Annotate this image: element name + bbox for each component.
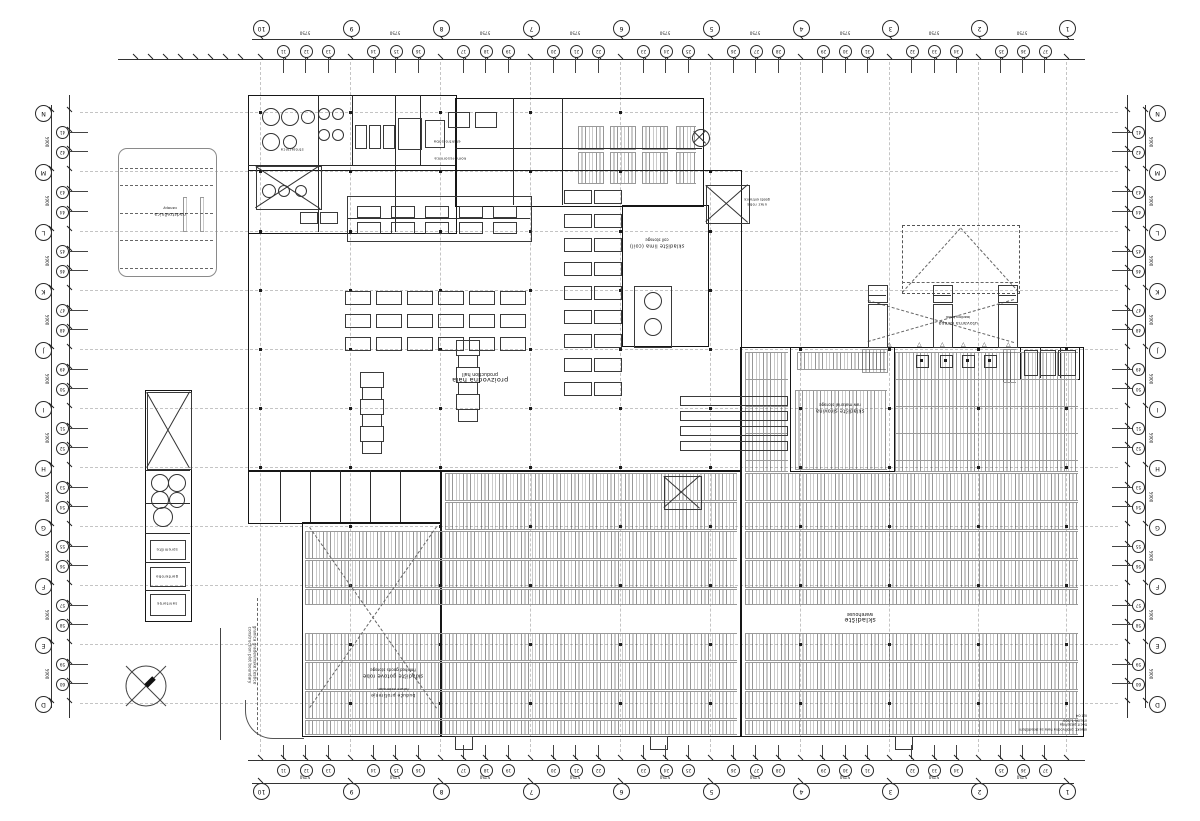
grid-subbubble-col: 27 xyxy=(750,764,763,777)
grid-subbubble-col: 30 xyxy=(839,764,852,777)
sub-stem xyxy=(66,565,88,566)
grid-subbubble-col: 29 xyxy=(817,45,830,58)
workbench xyxy=(407,291,433,305)
equipment xyxy=(1024,350,1038,376)
hatch-band xyxy=(200,197,204,232)
grid-bubble-row: H xyxy=(1149,460,1166,477)
sub-stem xyxy=(66,329,88,330)
lane-marking xyxy=(120,240,213,241)
dock-chevron: ▽ xyxy=(1006,341,1011,347)
grid-bubble-col: 2 xyxy=(971,20,988,37)
grid-subbubble-col: 14 xyxy=(367,764,380,777)
tank-circle xyxy=(278,185,290,197)
equipment xyxy=(475,112,497,128)
dim-text: 5750 xyxy=(750,31,761,36)
grid-subbubble-col: 15 xyxy=(390,764,403,777)
dock-chevron: ▽ xyxy=(887,341,892,347)
label-lockers: garderoba xyxy=(156,574,178,579)
tank-circle xyxy=(151,474,169,492)
workbench xyxy=(391,222,415,234)
label-production-hall: proizvodna hala production hall xyxy=(452,370,508,384)
workbench xyxy=(407,314,433,328)
pallet-rack xyxy=(680,411,788,421)
grid-subbubble-col: 19 xyxy=(502,764,515,777)
hatch-band xyxy=(578,152,604,184)
label-warehouse: skladište warehouse xyxy=(844,610,876,624)
workbench xyxy=(425,206,449,218)
grid-bubble-row: N xyxy=(35,105,52,122)
inner-wall xyxy=(352,95,353,165)
grid-bubble-row: M xyxy=(35,164,52,181)
grid-subbubble-row: 60 xyxy=(56,678,69,691)
grid-subbubble-col: 25 xyxy=(682,45,695,58)
sub-stem xyxy=(66,132,88,133)
grid-subbubble-row: 56 xyxy=(1132,560,1145,573)
sub-stem xyxy=(1112,546,1134,547)
sub-stem xyxy=(66,428,88,429)
grid-subbubble-col: 12 xyxy=(300,45,313,58)
grid-subbubble-row: 50 xyxy=(56,383,69,396)
truck-windshield xyxy=(868,295,886,296)
grid-subbubble-col: 35 xyxy=(995,45,1008,58)
sub-stem xyxy=(1112,151,1134,152)
grid-bubble-col: 1 xyxy=(1059,20,1076,37)
grid-subbubble-col: 36 xyxy=(1017,764,1030,777)
lane-marking xyxy=(120,185,213,186)
grid-subbubble-col: 12 xyxy=(300,764,313,777)
dock-door xyxy=(650,736,668,750)
workbench xyxy=(376,337,402,351)
grid-subbubble-col: 22 xyxy=(592,764,605,777)
grid-subbubble-row: 60 xyxy=(1132,678,1145,691)
grid-bubble-col: 5 xyxy=(703,783,720,800)
dim-text: 5900 xyxy=(1149,668,1154,679)
dim-text: 5900 xyxy=(45,491,50,502)
grid-subbubble-col: 24 xyxy=(660,764,673,777)
workbench xyxy=(459,206,483,218)
road-curb xyxy=(245,700,304,739)
grid-bubble-col: 3 xyxy=(882,783,899,800)
dim-text: 5900 xyxy=(45,255,50,266)
grid-subbubble-row: 45 xyxy=(1132,245,1145,258)
grid-subbubble-col: 26 xyxy=(727,45,740,58)
equipment xyxy=(398,118,422,150)
grid-subbubble-col: 35 xyxy=(995,764,1008,777)
equipment xyxy=(347,196,532,242)
workbench xyxy=(594,382,622,396)
grid-subbubble-row: 51 xyxy=(1132,422,1145,435)
dim-text: 5750 xyxy=(1017,31,1028,36)
workbench xyxy=(564,382,592,396)
grid-subbubble-row: 44 xyxy=(56,206,69,219)
grid-subbubble-col: 24 xyxy=(660,45,673,58)
dim-text: 5750 xyxy=(480,31,491,36)
grid-bubble-col: 4 xyxy=(793,20,810,37)
sub-stem xyxy=(66,605,88,606)
equipment xyxy=(448,112,470,128)
pallet-rack xyxy=(680,426,788,436)
workbench xyxy=(407,337,433,351)
dim-line xyxy=(252,783,1074,784)
north-arrow-compass xyxy=(123,663,169,709)
dock-bumper-dot xyxy=(944,359,947,362)
grid-subbubble-col: 13 xyxy=(322,764,335,777)
pallet-rack xyxy=(680,396,788,406)
grid-subbubble-col: 27 xyxy=(750,45,763,58)
dock-chevron: ▽ xyxy=(961,341,966,347)
grid-subbubble-col: 31 xyxy=(861,764,874,777)
label-coil-storage: skladište lima (coil) coil storage xyxy=(630,237,685,248)
grid-bubble-row: I xyxy=(1149,401,1166,418)
sub-stem xyxy=(1112,211,1134,212)
grid-subbubble-row: 58 xyxy=(1132,619,1145,632)
grid-subbubble-row: 49 xyxy=(56,363,69,376)
workbench xyxy=(438,291,464,305)
grid-subbubble-col: 16 xyxy=(412,764,425,777)
sub-stem xyxy=(1112,624,1134,625)
dim-text: 5750 xyxy=(570,31,581,36)
sub-stem xyxy=(1112,251,1134,252)
truck-cab xyxy=(868,285,888,303)
hatch-band xyxy=(895,433,1078,461)
workbench xyxy=(493,222,517,234)
grid-bubble-col: 8 xyxy=(433,783,450,800)
grid-subbubble-col: 28 xyxy=(772,764,785,777)
sub-stem xyxy=(1112,487,1134,488)
grid-subbubble-row: 47 xyxy=(56,304,69,317)
inner-wall xyxy=(145,533,190,534)
tank-circle xyxy=(301,110,315,124)
grid-subbubble-col: 13 xyxy=(322,45,335,58)
dock-chevron: ▽ xyxy=(917,341,922,347)
wall xyxy=(248,470,442,524)
sub-stem xyxy=(1112,605,1134,606)
truck-cab xyxy=(998,285,1018,303)
hatch-band xyxy=(642,152,668,184)
press-machine xyxy=(360,372,384,388)
label-storage-small: spremište xyxy=(156,547,177,552)
grid-subbubble-row: 53 xyxy=(1132,481,1145,494)
workbench xyxy=(376,291,402,305)
label-future-extension: buduće proširenje future extension xyxy=(371,687,416,697)
grid-bubble-row: F xyxy=(35,578,52,595)
dim-text: 5900 xyxy=(45,314,50,325)
sub-stem xyxy=(66,310,88,311)
sub-stem xyxy=(66,447,88,448)
grid-subbubble-col: 18 xyxy=(480,45,493,58)
dim-text: 5750 xyxy=(300,31,311,36)
grid-bubble-col: 8 xyxy=(433,20,450,37)
grid-bubble-row: D xyxy=(1149,696,1166,713)
hatch-band xyxy=(745,531,1078,559)
sub-stem xyxy=(66,683,88,684)
hatch-band xyxy=(745,662,1078,690)
grid-subbubble-row: 48 xyxy=(1132,324,1145,337)
tank-circle xyxy=(332,129,344,141)
inner-wall xyxy=(513,98,514,205)
hatch-band xyxy=(745,460,788,472)
sub-stem xyxy=(1112,329,1134,330)
sub-stem xyxy=(66,369,88,370)
grid-subbubble-col: 11 xyxy=(277,764,290,777)
hatch-band xyxy=(745,502,1078,530)
inner-wall xyxy=(310,470,311,522)
workbench xyxy=(564,286,592,300)
lane-marking xyxy=(120,268,213,269)
workbench xyxy=(500,314,526,328)
grid-subbubble-col: 21 xyxy=(570,45,583,58)
grid-bubble-row: K xyxy=(35,283,52,300)
tank-circle xyxy=(318,108,330,120)
tank-circle xyxy=(318,129,330,141)
hatch-band xyxy=(862,349,888,373)
dim-text: 5900 xyxy=(1149,136,1154,147)
tank-circle xyxy=(281,108,299,126)
grid-bubble-row: K xyxy=(1149,283,1166,300)
inner-wall xyxy=(400,470,401,522)
workbench xyxy=(594,358,622,372)
press-machine xyxy=(360,399,384,415)
grid-subbubble-row: 58 xyxy=(56,619,69,632)
sub-stem xyxy=(66,211,88,212)
workbench xyxy=(564,310,592,324)
workbench xyxy=(594,262,622,276)
workbench xyxy=(438,314,464,328)
workbench xyxy=(594,238,622,252)
grid-subbubble-row: 52 xyxy=(56,442,69,455)
workbench xyxy=(594,214,622,228)
grid-subbubble-row: 44 xyxy=(1132,206,1145,219)
workbench xyxy=(345,314,371,328)
label-loading-bank: utovarna rampa loading bank xyxy=(938,315,978,325)
grid-bubble-row: G xyxy=(1149,519,1166,536)
grid-bubble-row: I xyxy=(35,401,52,418)
grid-subbubble-col: 17 xyxy=(457,764,470,777)
workbench xyxy=(357,206,381,218)
dock-door xyxy=(455,736,473,750)
workbench xyxy=(469,314,495,328)
inner-wall xyxy=(145,470,190,471)
equipment xyxy=(383,125,395,149)
workbench xyxy=(500,291,526,305)
drawing-stamp: objekt: proizvodna hala sa skladištem tl… xyxy=(1019,713,1087,732)
grid-subbubble-row: 55 xyxy=(56,540,69,553)
grid-subbubble-col: 31 xyxy=(861,45,874,58)
workbench xyxy=(564,190,592,204)
label-mid-storage: skladište sirovina raw material storage xyxy=(816,402,865,413)
workbench xyxy=(564,334,592,348)
grid-subbubble-col: 20 xyxy=(547,764,560,777)
grid-bubble-row: E xyxy=(1149,637,1166,654)
grid-subbubble-row: 43 xyxy=(1132,186,1145,199)
grid-subbubble-row: 52 xyxy=(1132,442,1145,455)
inner-wall xyxy=(562,98,563,205)
grid-subbubble-col: 15 xyxy=(390,45,403,58)
workbench xyxy=(391,206,415,218)
grid-subbubble-col: 33 xyxy=(928,45,941,58)
grid-bubble-row: M xyxy=(1149,164,1166,181)
grid-subbubble-row: 50 xyxy=(1132,383,1145,396)
grid-bubble-row: F xyxy=(1149,578,1166,595)
sub-stem xyxy=(66,546,88,547)
hatch-band xyxy=(305,589,737,605)
dim-line xyxy=(118,59,1085,60)
grid-bubble-col: 7 xyxy=(523,20,540,37)
floor-plan-canvas: 1098765432111121314151617181920212223242… xyxy=(0,0,1200,821)
label-canopy: nadstrešnica canopy xyxy=(154,206,186,216)
label-compressor-room: kompresornica xyxy=(434,156,466,161)
press-machine xyxy=(458,409,478,422)
tank-circle xyxy=(153,507,173,527)
grid-subbubble-row: 42 xyxy=(56,146,69,159)
grid-bubble-col: 1 xyxy=(1059,783,1076,800)
grid-bubble-row: L xyxy=(1149,224,1166,241)
dim-text: 5900 xyxy=(45,373,50,384)
dashed-line xyxy=(902,282,1018,283)
grid-subbubble-row: 53 xyxy=(56,481,69,494)
grid-subbubble-row: 57 xyxy=(56,599,69,612)
dock-chevron: ▽ xyxy=(982,341,987,347)
workbench xyxy=(459,222,483,234)
grid-subbubble-col: 17 xyxy=(457,45,470,58)
workbench xyxy=(425,222,449,234)
grid-subbubble-row: 57 xyxy=(1132,599,1145,612)
grid-subbubble-row: 59 xyxy=(1132,658,1145,671)
equipment xyxy=(1040,350,1056,376)
hatch-band xyxy=(305,560,737,588)
hatch-band xyxy=(895,460,1078,472)
dim-text: 5750 xyxy=(928,31,939,36)
hatch-band xyxy=(305,531,737,559)
dim-text: 5900 xyxy=(1149,432,1154,443)
truck-windshield xyxy=(933,295,951,296)
sub-stem xyxy=(1112,132,1134,133)
dock-bumper-dot xyxy=(920,359,923,362)
dim-text: 5750 xyxy=(390,31,401,36)
grid-subbubble-col: 23 xyxy=(637,764,650,777)
grid-subbubble-row: 59 xyxy=(56,658,69,671)
grid-bubble-col: 10 xyxy=(253,20,270,37)
sub-stem xyxy=(1112,369,1134,370)
dim-text: 5750 xyxy=(839,31,850,36)
dim-text: 5900 xyxy=(45,550,50,561)
grid-subbubble-col: 32 xyxy=(906,45,919,58)
grid-bubble-row: D xyxy=(35,696,52,713)
dim-text: 5900 xyxy=(1149,196,1154,207)
label-plant-room: strojarnica xyxy=(280,147,303,152)
grid-bubble-row: J xyxy=(1149,342,1166,359)
hatch-band xyxy=(578,126,604,150)
grid-subbubble-row: 43 xyxy=(56,186,69,199)
label-el-room: elektro soba xyxy=(433,139,460,144)
equipment xyxy=(355,125,367,149)
hatch-band xyxy=(745,560,1078,588)
inner-wall xyxy=(370,470,371,522)
workbench xyxy=(594,334,622,348)
grid-bubble-col: 5 xyxy=(703,20,720,37)
tank-circle xyxy=(644,318,662,336)
hatch-band xyxy=(895,406,1078,434)
grid-subbubble-col: 30 xyxy=(839,45,852,58)
grid-bubble-row: E xyxy=(35,637,52,654)
grid-subbubble-col: 21 xyxy=(570,764,583,777)
label-plot-boundary: granica građevinske čestice construction… xyxy=(247,626,258,685)
grid-subbubble-col: 37 xyxy=(1039,45,1052,58)
hatch-band xyxy=(305,633,737,661)
sub-stem xyxy=(66,487,88,488)
sub-stem xyxy=(66,270,88,271)
grid-subbubble-row: 54 xyxy=(56,501,69,514)
dim-text: 5900 xyxy=(1149,373,1154,384)
truck-windshield xyxy=(998,295,1016,296)
equipment xyxy=(320,212,338,224)
sub-stem xyxy=(1112,191,1134,192)
truck-body xyxy=(868,304,888,348)
sub-stem xyxy=(66,624,88,625)
hatch-band xyxy=(676,152,696,184)
grid-bubble-col: 6 xyxy=(613,20,630,37)
workbench xyxy=(564,214,592,228)
grid-subbubble-col: 36 xyxy=(1017,45,1030,58)
dim-text: 5900 xyxy=(1149,491,1154,502)
grid-subbubble-row: 54 xyxy=(1132,501,1145,514)
dim-text: 5900 xyxy=(45,136,50,147)
workbench xyxy=(376,314,402,328)
tank-circle xyxy=(262,133,280,151)
lane-marking xyxy=(120,168,213,169)
grid-bubble-col: 4 xyxy=(793,783,810,800)
equipment xyxy=(1058,350,1076,376)
grid-bubble-row: L xyxy=(35,224,52,241)
sub-stem xyxy=(66,151,88,152)
dim-text: 5900 xyxy=(1149,314,1154,325)
sub-stem xyxy=(1112,310,1134,311)
grid-subbubble-col: 20 xyxy=(547,45,560,58)
dock-bumper-dot xyxy=(988,359,991,362)
hatch-band xyxy=(305,720,737,735)
grid-subbubble-row: 45 xyxy=(56,245,69,258)
inner-wall xyxy=(280,470,281,522)
workbench xyxy=(564,238,592,252)
dim-text: 5900 xyxy=(1149,255,1154,266)
label-goods-entrance: ulaz robe goods entrance xyxy=(744,198,770,207)
tank-circle xyxy=(169,492,185,508)
press-machine xyxy=(362,441,382,454)
inner-wall xyxy=(340,470,341,522)
press-machine xyxy=(456,394,480,410)
dock-door xyxy=(895,736,913,750)
hatch-band xyxy=(610,126,636,150)
workbench xyxy=(493,206,517,218)
label-finished-goods: skladište gotove robe finished goods sto… xyxy=(363,667,423,678)
workbench xyxy=(500,337,526,351)
grid-subbubble-col: 11 xyxy=(277,45,290,58)
workbench xyxy=(594,310,622,324)
grid-subbubble-col: 22 xyxy=(592,45,605,58)
tank-circle xyxy=(644,292,662,310)
grid-subbubble-row: 55 xyxy=(1132,540,1145,553)
grid-subbubble-row: 48 xyxy=(56,324,69,337)
sub-stem xyxy=(66,191,88,192)
hatch-band xyxy=(1003,349,1016,383)
workbench xyxy=(469,291,495,305)
road-edge xyxy=(220,628,221,740)
canopy-outline xyxy=(902,225,1020,294)
sub-stem xyxy=(1112,565,1134,566)
label-sanitary: sanitarije xyxy=(157,601,178,606)
grid-subbubble-row: 49 xyxy=(1132,363,1145,376)
grid-subbubble-row: 51 xyxy=(56,422,69,435)
